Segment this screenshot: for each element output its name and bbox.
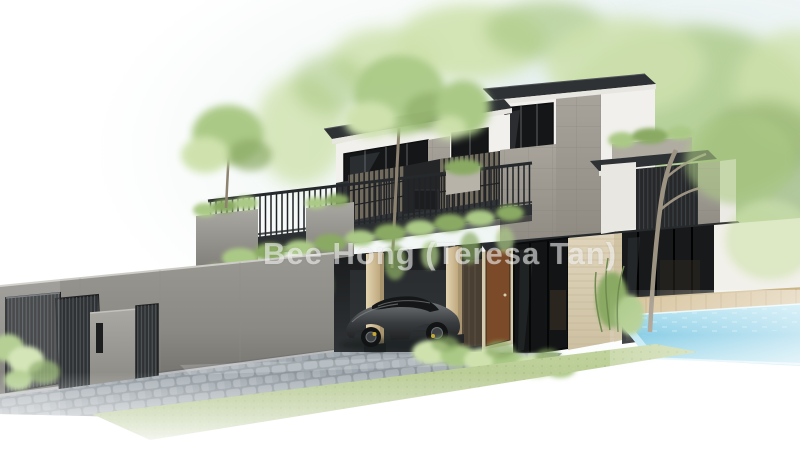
car-wheel-front xyxy=(361,327,381,347)
architectural-rendering: Bee Hong (Teresa Tan) xyxy=(0,0,800,450)
mail-slot xyxy=(96,323,103,353)
front-door xyxy=(486,248,510,346)
white-wall-above-entry xyxy=(601,162,636,234)
entry-glass xyxy=(514,238,568,356)
scene-canvas xyxy=(0,0,800,450)
balcony-planter xyxy=(444,159,482,195)
